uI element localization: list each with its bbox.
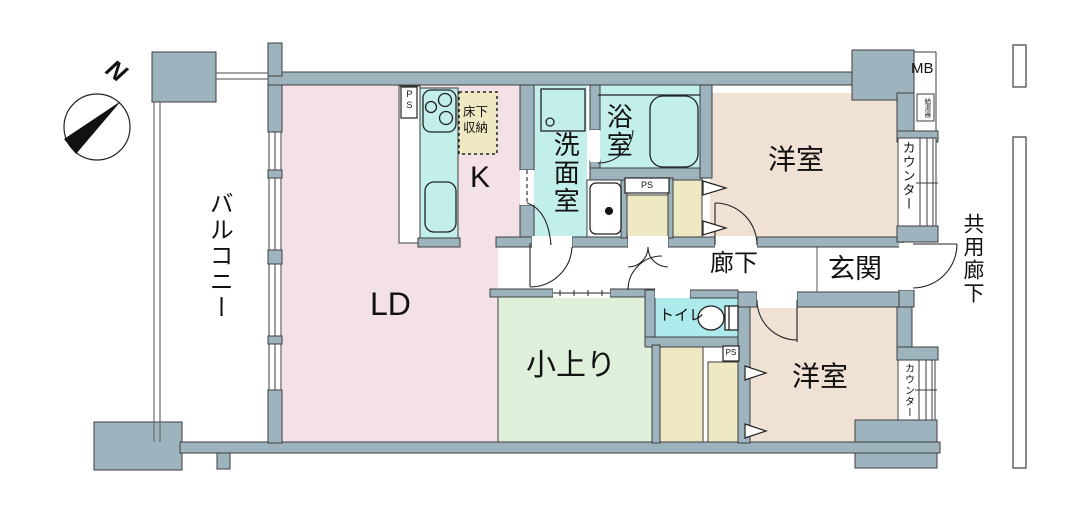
label-bathroom: 浴室 [604,103,631,159]
western-top-closet-fill [671,178,702,238]
closet-bottom-left-fill [660,347,703,443]
label-ps-bath: PS [625,178,669,193]
compass-icon [64,94,130,160]
pillar-top-left [152,52,216,102]
label-entrance: 玄関 [828,255,882,283]
pillar-bottom-left [94,422,182,470]
washbasin-icon [541,89,585,131]
floor-plan-drawing [0,0,1083,531]
label-ps-kitchen: PS [404,89,413,111]
label-water-heater: 給湯器 [918,95,933,120]
common-corridor-edge [1013,45,1026,468]
label-hallway: 廊下 [710,251,758,276]
closet-bottom-right-fill [708,362,738,443]
label-counter-top: カウンター [901,141,915,211]
floor-plan: N バルコニー LD K 洗面室 浴室 洋室 洋室 廊下 玄関 トイレ 小上り … [0,0,1083,531]
label-western-room-top: 洋室 [768,145,824,174]
label-kitchen: K [470,162,490,194]
kitchen-counter-fill [418,88,458,238]
label-western-room-bottom: 洋室 [792,362,848,391]
label-living-dining: LD [370,288,411,322]
label-raised-floor: 小上り [526,350,616,382]
label-floor-storage-1: 床下 [463,106,488,119]
label-floor-storage-2: 収納 [463,122,488,135]
label-toilet: トイレ [659,308,704,324]
hall-storage-fill [627,195,668,237]
label-washroom: 洗面室 [551,131,578,215]
label-meter-box: MB [911,61,934,77]
label-balcony: バルコニー [206,191,231,321]
label-counter-bottom: カウンター [902,363,913,418]
label-common-corridor: 共用廊下 [961,213,983,305]
label-ps-toilet: PS [723,346,739,361]
